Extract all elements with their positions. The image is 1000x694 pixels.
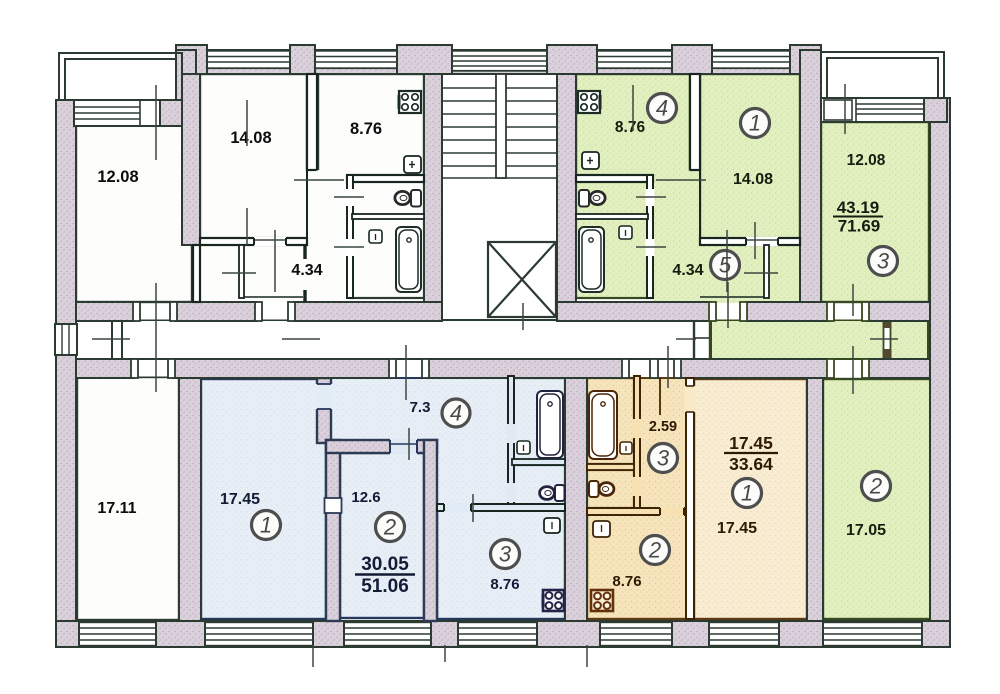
svg-text:5: 5 (719, 253, 732, 278)
svg-text:8.76: 8.76 (612, 573, 641, 590)
svg-text:4: 4 (656, 96, 668, 121)
svg-text:2: 2 (648, 538, 661, 563)
svg-text:33.64: 33.64 (729, 454, 773, 474)
svg-text:1: 1 (749, 111, 761, 136)
svg-text:2.59: 2.59 (649, 419, 677, 435)
svg-text:1: 1 (741, 481, 753, 506)
svg-text:17.05: 17.05 (846, 522, 886, 539)
svg-text:17.45: 17.45 (717, 520, 757, 537)
svg-text:30.05: 30.05 (361, 554, 409, 575)
svg-text:2: 2 (383, 515, 396, 540)
svg-text:3: 3 (877, 249, 890, 274)
svg-text:14.08: 14.08 (230, 129, 271, 147)
svg-text:1: 1 (260, 513, 272, 538)
svg-text:17.45: 17.45 (220, 491, 260, 508)
svg-text:17.11: 17.11 (97, 500, 136, 517)
svg-text:12.08: 12.08 (847, 152, 886, 169)
svg-text:4: 4 (450, 401, 462, 426)
svg-text:12.08: 12.08 (97, 168, 138, 186)
svg-text:51.06: 51.06 (361, 576, 409, 597)
svg-text:43.19: 43.19 (837, 198, 880, 217)
svg-text:4.34: 4.34 (291, 262, 322, 279)
svg-text:8.76: 8.76 (615, 119, 646, 136)
svg-text:7.3: 7.3 (410, 399, 431, 416)
svg-text:8.76: 8.76 (350, 120, 382, 138)
svg-text:3: 3 (499, 542, 512, 567)
svg-text:12.6: 12.6 (351, 489, 380, 506)
svg-text:17.45: 17.45 (729, 433, 773, 453)
svg-text:2: 2 (869, 474, 882, 499)
svg-text:71.69: 71.69 (838, 217, 881, 236)
svg-text:3: 3 (657, 446, 670, 471)
svg-text:14.08: 14.08 (733, 171, 773, 188)
svg-text:8.76: 8.76 (490, 576, 519, 593)
svg-text:4.34: 4.34 (672, 262, 703, 279)
